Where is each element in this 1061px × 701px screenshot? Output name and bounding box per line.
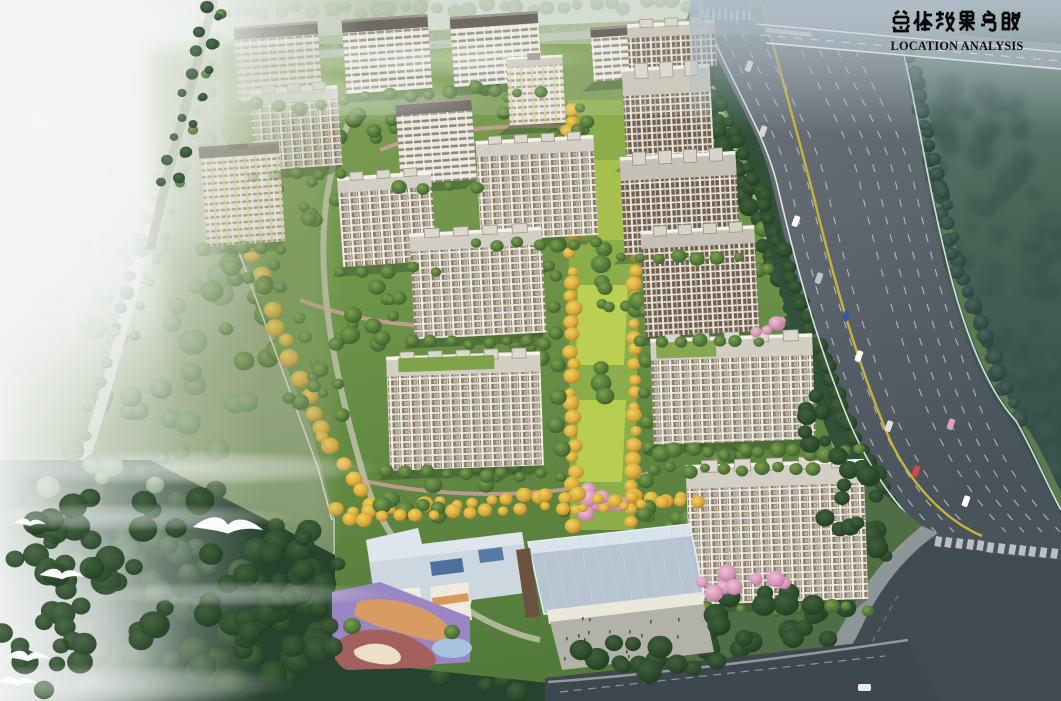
svg-text:LOCATION ANALYSIS: LOCATION ANALYSIS	[891, 39, 1024, 53]
